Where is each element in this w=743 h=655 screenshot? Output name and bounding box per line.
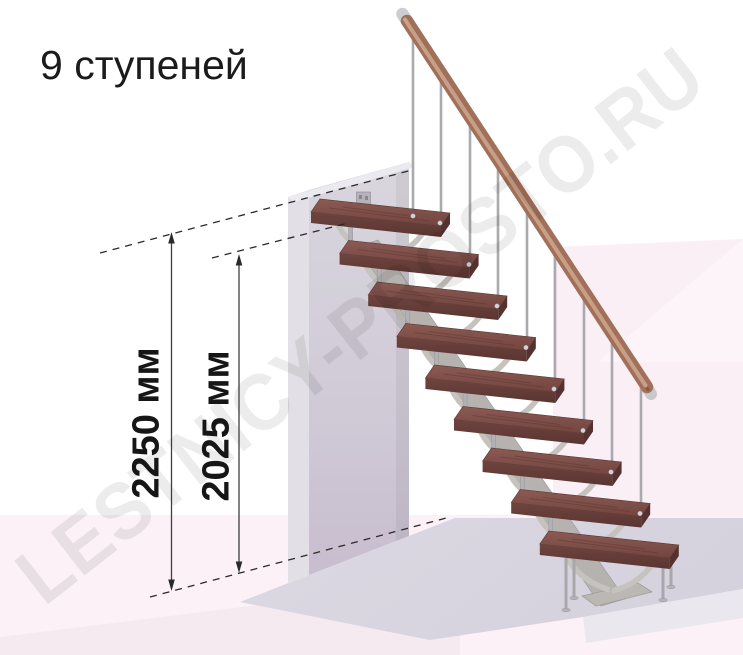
dim-label-2250: 2250 мм — [125, 347, 167, 498]
diagram-svg: LESTNICY-PROSTO.RU 2250 мм 2025 мм 9 сту… — [0, 0, 743, 655]
stair-diagram-page: LESTNICY-PROSTO.RU 2250 мм 2025 мм 9 сту… — [0, 0, 743, 655]
page-title: 9 ступеней — [40, 42, 248, 88]
dim-label-2025: 2025 мм — [195, 350, 237, 501]
